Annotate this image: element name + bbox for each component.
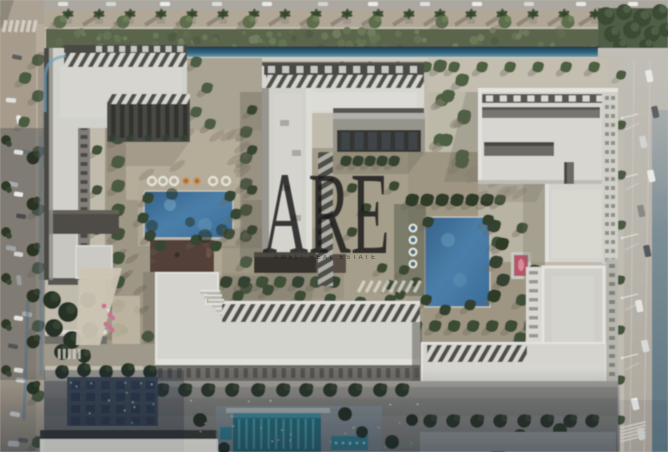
svg-text:AMELI REAL ESTATE: AMELI REAL ESTATE: [274, 255, 377, 261]
